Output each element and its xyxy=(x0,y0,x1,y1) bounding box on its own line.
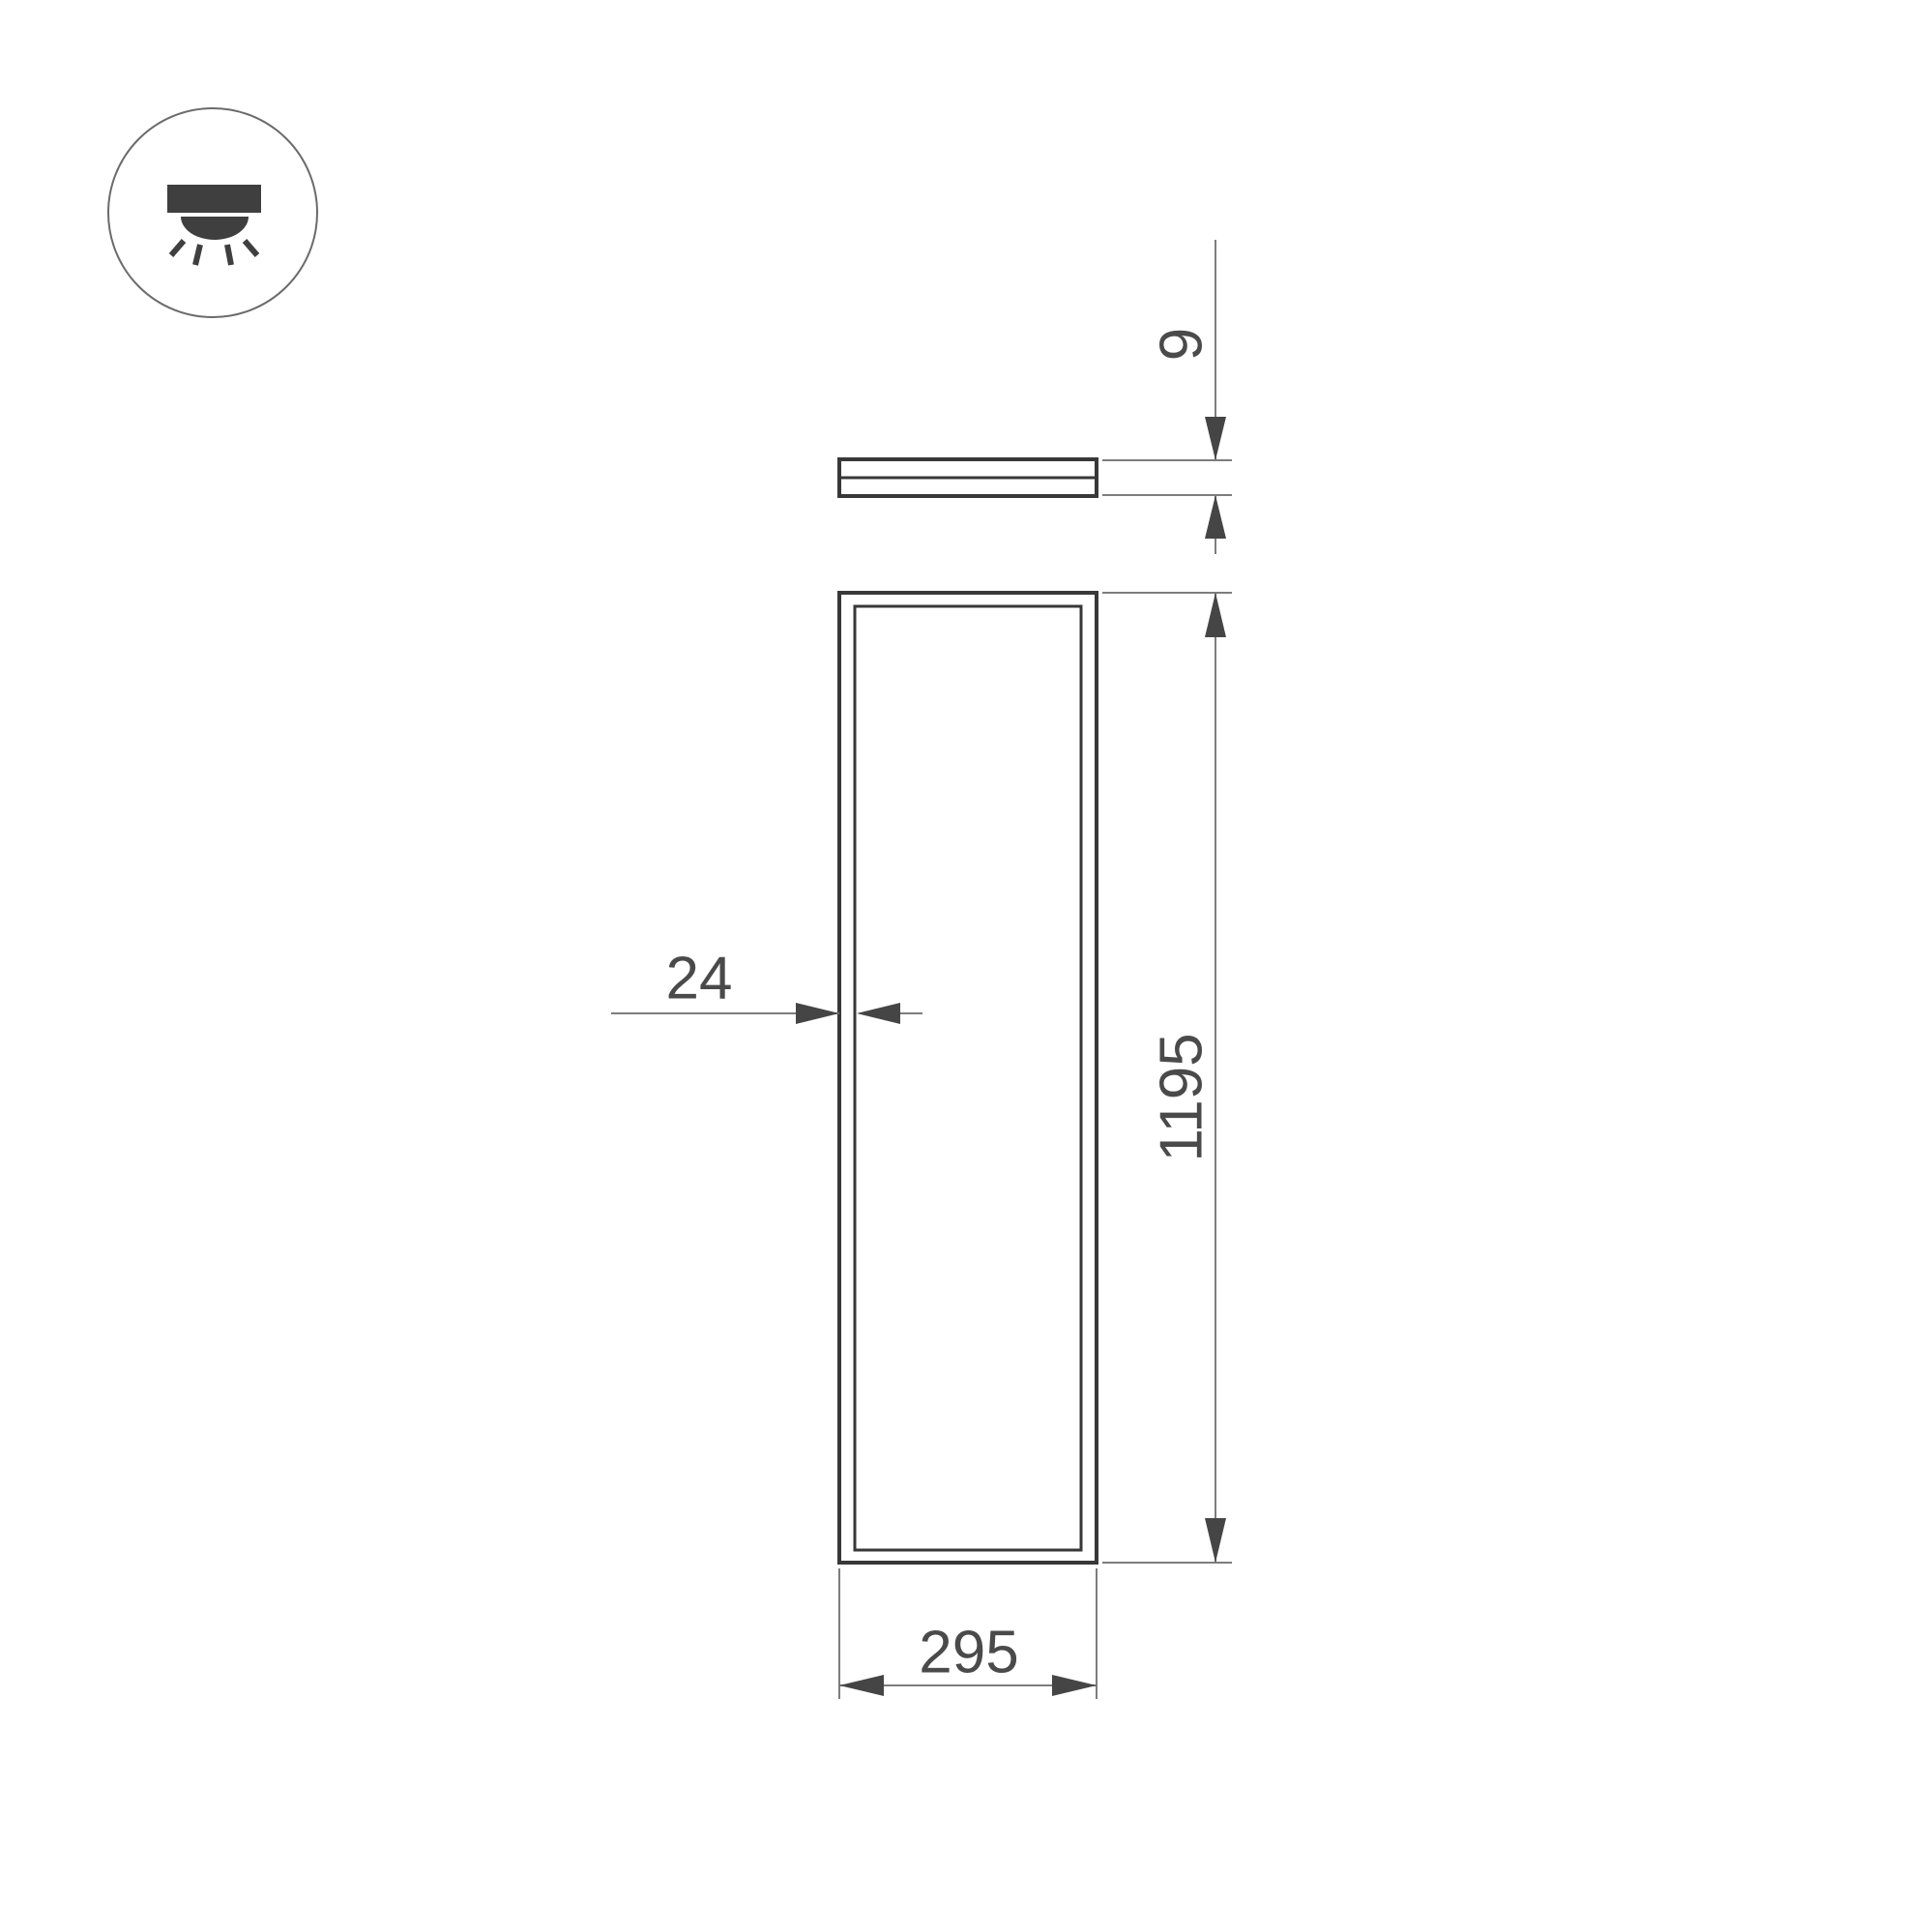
dim-width: 295 xyxy=(839,1568,1097,1699)
downlight-icon xyxy=(108,108,317,317)
icon-lamp-body xyxy=(167,185,261,213)
arrowhead-left xyxy=(839,1675,884,1696)
front-view-outline xyxy=(839,593,1097,1563)
arrowhead-down xyxy=(1205,417,1226,460)
dim-height: 1195 xyxy=(1102,593,1232,1563)
dim-label-height: 1195 xyxy=(1149,1033,1215,1161)
side-view xyxy=(839,459,1097,496)
icon-light-ray xyxy=(227,245,231,265)
dim-label-thickness: 9 xyxy=(1149,328,1215,361)
arrowhead-right xyxy=(1052,1675,1097,1696)
dim-label-width: 295 xyxy=(919,1620,1018,1686)
front-view xyxy=(839,593,1097,1563)
arrowhead-right xyxy=(796,1003,839,1024)
dim-label-frame: 24 xyxy=(666,946,733,1012)
arrowhead-up xyxy=(1205,593,1226,637)
dim-thickness: 9 xyxy=(1102,240,1232,554)
technical-drawing: 9 1195 295 24 xyxy=(0,0,1932,1932)
arrowhead-up xyxy=(1205,495,1226,539)
drawing-canvas: 9 1195 295 24 xyxy=(0,0,1932,1932)
arrowhead-down xyxy=(1205,1518,1226,1563)
